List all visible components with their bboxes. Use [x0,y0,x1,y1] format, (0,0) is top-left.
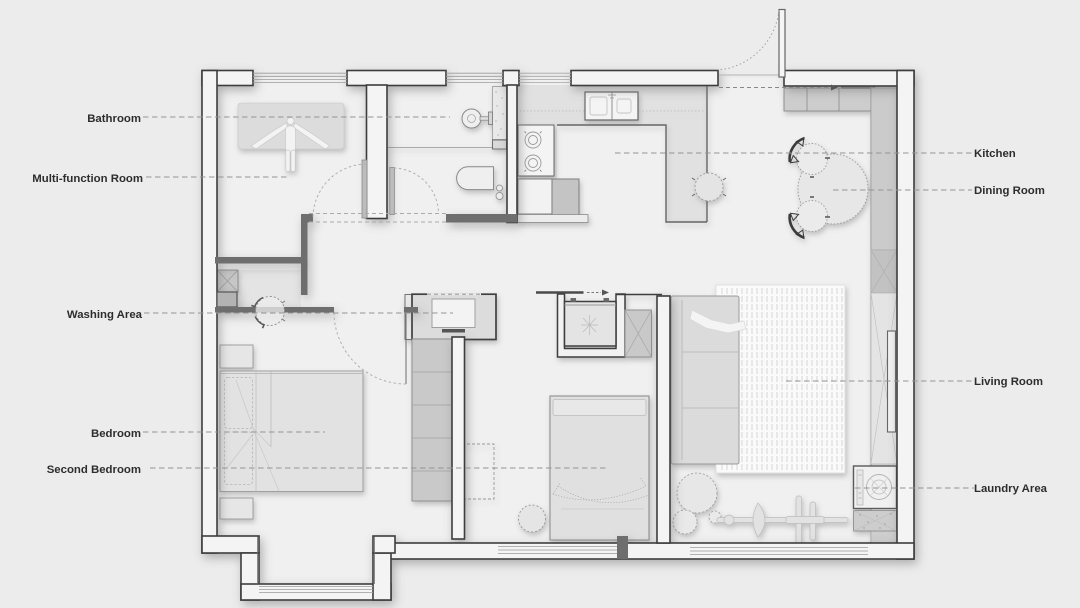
svg-text:Washing Area: Washing Area [67,309,143,321]
svg-text:Dining Room: Dining Room [974,185,1045,197]
svg-text:Second Bedroom: Second Bedroom [47,464,141,476]
svg-text:Living Room: Living Room [974,376,1043,388]
svg-text:Bathroom: Bathroom [87,113,141,125]
svg-text:Multi-function Room: Multi-function Room [32,173,143,185]
svg-text:Kitchen: Kitchen [974,148,1016,160]
svg-text:Laundry Area: Laundry Area [974,483,1048,495]
svg-text:Bedroom: Bedroom [91,428,141,440]
